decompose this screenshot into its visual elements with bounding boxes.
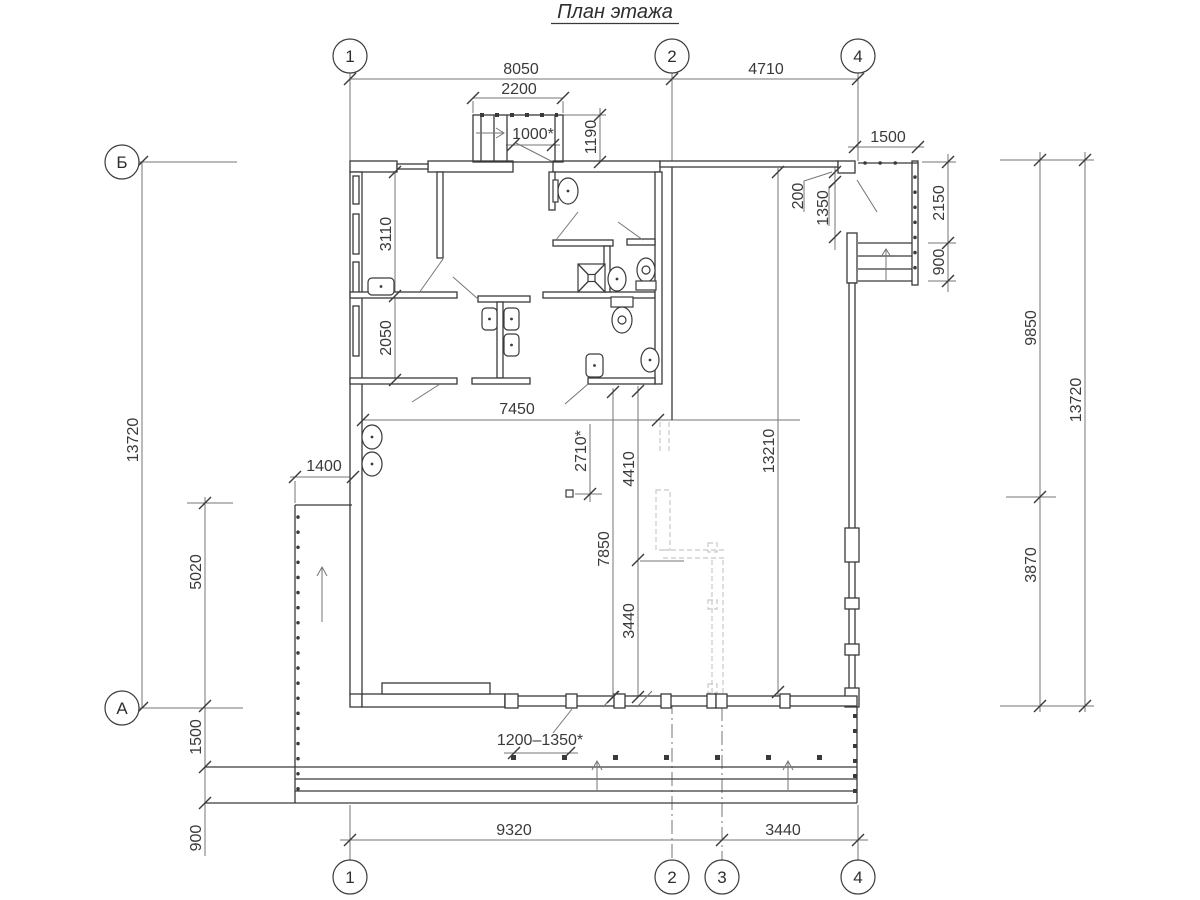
right-wall-stub xyxy=(847,233,857,283)
left-wall-window xyxy=(353,306,359,356)
door-leaf xyxy=(618,222,643,240)
axis-bubble-top-2: 2 xyxy=(655,39,689,73)
top-wall-right xyxy=(553,161,660,172)
partition-t-top xyxy=(478,296,530,302)
dimension-labels: 8050 2200 4710 1000* 1190 1500 200 1350 … xyxy=(125,61,1085,851)
door-swings xyxy=(412,143,877,707)
dim-label: 3440 xyxy=(621,603,638,639)
top-wall-thin xyxy=(660,161,838,167)
dim-label: 3440 xyxy=(765,822,801,839)
axis-label: 1 xyxy=(345,868,354,887)
bottom-wall-post xyxy=(566,694,577,708)
dim-label: 7850 xyxy=(596,531,613,567)
bottom-interior-wall xyxy=(382,683,490,694)
dim-label: 13720 xyxy=(1068,378,1085,423)
level-marker xyxy=(566,490,573,497)
right-wall-post xyxy=(845,598,859,609)
axis-bubble-top-1: 1 xyxy=(333,39,367,73)
axis-bubble-left-b: Б xyxy=(105,145,139,179)
partition-t-bottom xyxy=(472,378,530,384)
toilet-tank xyxy=(611,297,633,307)
dim-label: 5020 xyxy=(188,554,205,590)
dim-label: 200 xyxy=(790,183,807,210)
dim-label: 2710* xyxy=(573,430,590,472)
dim-label: 900 xyxy=(188,825,205,852)
door-leaf xyxy=(556,212,578,240)
partition-sink-wall xyxy=(497,302,503,378)
dim-label: 3110 xyxy=(378,217,395,252)
left-wall-window xyxy=(353,176,359,204)
dim-label: 1350 xyxy=(815,190,832,226)
top-wall-window xyxy=(397,164,428,169)
dim-label: 1190 xyxy=(583,120,600,155)
right-wall-glazing xyxy=(849,283,855,693)
dimension-lines xyxy=(142,79,1094,856)
dim-label: 900 xyxy=(931,249,948,276)
dim-label: 4410 xyxy=(621,451,638,487)
axis-label: Б xyxy=(116,153,127,172)
partition-wc-mid xyxy=(627,239,655,245)
partition-shower-top xyxy=(553,240,613,246)
partition-v1 xyxy=(437,172,443,258)
bottom-wall-solid xyxy=(362,694,505,707)
corner-block-sw xyxy=(350,694,362,707)
axis-bubble-left-a: А xyxy=(105,691,139,725)
bottom-wall-glazing xyxy=(505,696,857,706)
right-wall-post xyxy=(845,528,859,562)
left-wall-window xyxy=(353,214,359,254)
dim-label: 2050 xyxy=(378,320,395,356)
bottom-wall-post xyxy=(780,694,790,708)
axis-bubble-bottom-2: 2 xyxy=(655,860,689,894)
dim-label: 13210 xyxy=(761,429,778,474)
drawing-title: План этажа xyxy=(551,1,679,24)
bottom-wall-post xyxy=(716,694,727,708)
dim-label: 1500 xyxy=(188,719,205,755)
axis-label: 3 xyxy=(717,868,726,887)
hidden-outline xyxy=(656,422,724,694)
top-wall-left xyxy=(350,161,397,172)
floor-plan-page: План этажа xyxy=(0,0,1200,900)
axis-bubble-bottom-3: 3 xyxy=(705,860,739,894)
toilet-detail xyxy=(642,266,650,274)
walls xyxy=(350,161,859,708)
door-leaf xyxy=(857,180,877,212)
door-leaf xyxy=(412,384,440,402)
axis-bubble-top-4: 4 xyxy=(841,39,875,73)
partition-h3 xyxy=(543,292,655,298)
axis-bubble-bottom-4: 4 xyxy=(841,860,875,894)
axis-label: 1 xyxy=(345,47,354,66)
axis-label: 2 xyxy=(667,47,676,66)
bottom-wall-post xyxy=(614,694,625,708)
porch-top-right xyxy=(858,161,918,285)
dim-label: 1500 xyxy=(870,129,906,146)
partition-h1 xyxy=(350,292,457,298)
terrace-bottom xyxy=(205,707,857,803)
dim-label: 1400 xyxy=(306,458,342,475)
bottom-wall-post xyxy=(505,694,518,708)
dim-label: 7450 xyxy=(499,401,535,418)
dim-label: 1200–1350* xyxy=(497,732,583,749)
right-wall-post xyxy=(845,644,859,655)
dim-label: 13720 xyxy=(125,418,142,463)
floor-plan-drawing: План этажа xyxy=(0,0,1200,900)
door-leaf xyxy=(419,259,443,293)
axis-label: 4 xyxy=(853,868,862,887)
axis-label: 2 xyxy=(667,868,676,887)
dim-label: 9320 xyxy=(496,822,532,839)
door-leaf xyxy=(565,384,588,404)
ramp-left xyxy=(295,505,352,803)
page-title: План этажа xyxy=(557,1,673,23)
partition-h4 xyxy=(588,378,655,384)
dim-label: 2200 xyxy=(501,81,537,98)
axis-label: А xyxy=(116,699,128,718)
toilet-detail xyxy=(618,316,626,324)
door-leaf xyxy=(516,143,553,162)
dim-label: 8050 xyxy=(503,61,539,78)
bottom-wall-post xyxy=(661,694,671,708)
sink-bracket xyxy=(553,180,558,202)
dim-label: 4710 xyxy=(748,61,784,78)
dim-label: 2150 xyxy=(931,185,948,221)
toilet-tank xyxy=(636,281,656,290)
dim-label: 3870 xyxy=(1023,547,1040,583)
fixtures xyxy=(362,178,659,476)
dim-label: 9850 xyxy=(1023,310,1040,346)
shower-drain xyxy=(588,275,595,282)
bottom-wall-post xyxy=(707,694,716,708)
axis-bubble-bottom-1: 1 xyxy=(333,860,367,894)
dim-label: 1000* xyxy=(512,126,554,143)
partition-h2 xyxy=(350,378,457,384)
axis-label: 4 xyxy=(853,47,862,66)
